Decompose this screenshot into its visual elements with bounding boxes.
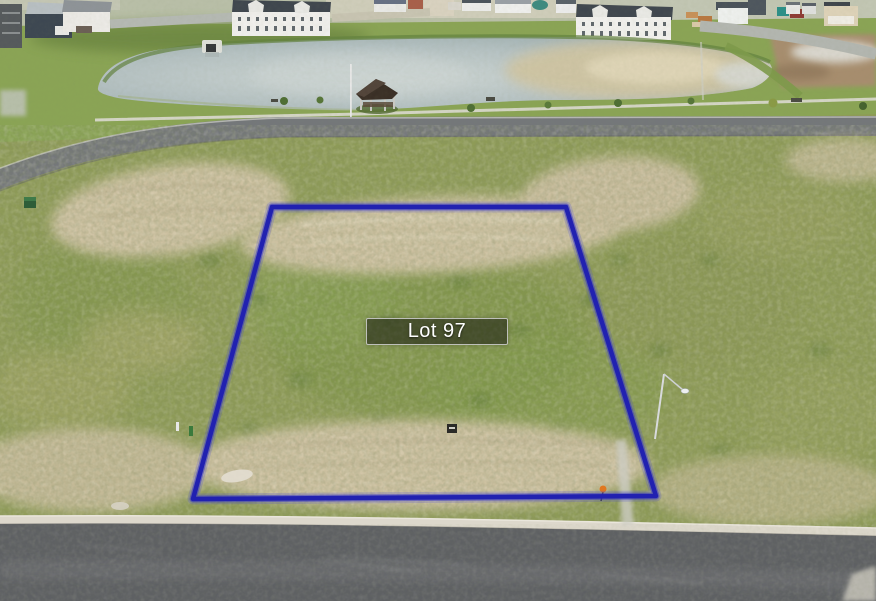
white-debris-small [111, 502, 129, 510]
utility-box-green [24, 197, 36, 208]
lot-label: Lot 97 [366, 318, 508, 345]
lot-label-text: Lot 97 [408, 320, 467, 343]
street-bottom [0, 516, 876, 601]
utility-marker [447, 424, 457, 433]
aerial-photo-scene [0, 0, 876, 601]
photo-grain [0, 0, 876, 601]
aerial-photo: Lot 97 [0, 0, 876, 601]
